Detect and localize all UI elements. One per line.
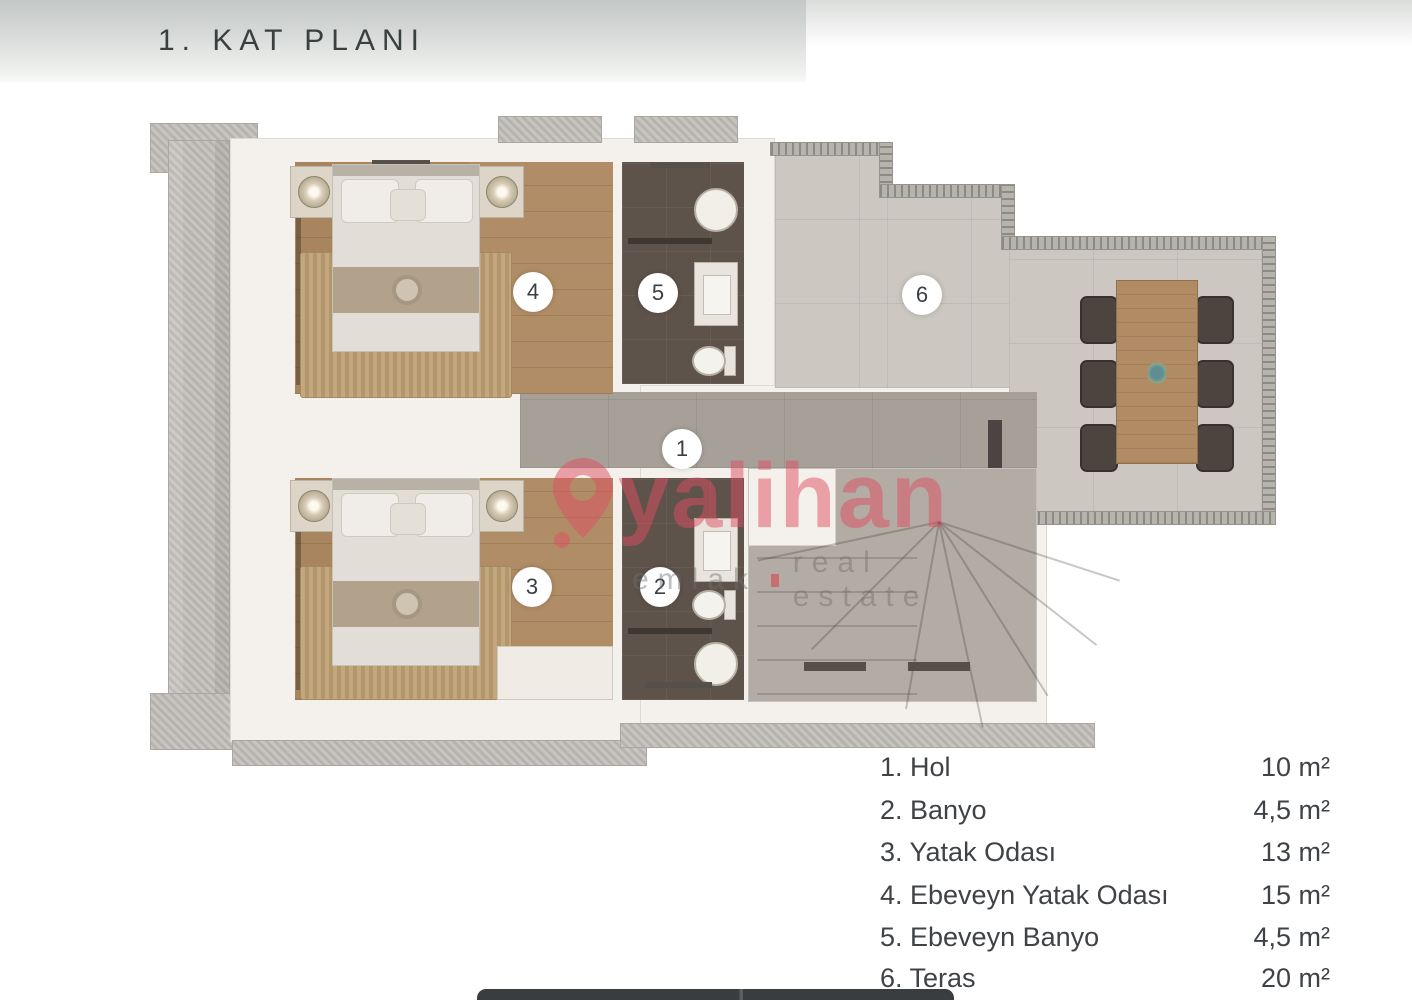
bath-window-slit bbox=[650, 163, 710, 168]
terrace-railing bbox=[879, 184, 1015, 198]
legend-row: 1. Hol 10 m² bbox=[880, 752, 1330, 783]
room-marker-6: 6 bbox=[902, 275, 942, 315]
terrace-railing bbox=[1262, 236, 1276, 525]
room-marker-3: 3 bbox=[512, 567, 552, 607]
dining-chair bbox=[1196, 360, 1234, 408]
stair-window-slit bbox=[804, 662, 866, 671]
vanity-basin bbox=[703, 275, 731, 315]
terrace-railing bbox=[770, 142, 893, 156]
pillow bbox=[390, 503, 426, 535]
nightstand bbox=[478, 166, 524, 218]
dining-chair bbox=[1080, 424, 1118, 472]
headboard bbox=[333, 479, 479, 490]
balcony-rail-left bbox=[168, 140, 230, 736]
room-marker-5-num: 5 bbox=[652, 280, 664, 306]
round-sink bbox=[694, 188, 738, 232]
legend-row: 2. Banyo 4,5 m² bbox=[880, 795, 1330, 826]
room-marker-4-num: 4 bbox=[527, 279, 539, 305]
bed-medallion bbox=[392, 275, 422, 305]
room-marker-5: 5 bbox=[638, 273, 678, 313]
vanity bbox=[694, 262, 738, 326]
roof-block-right bbox=[634, 116, 738, 143]
legend-row: 5. Ebeveyn Banyo 4,5 m² bbox=[880, 922, 1330, 953]
location-pin-icon bbox=[552, 458, 614, 550]
dining-chair bbox=[1080, 296, 1118, 344]
header-gradient bbox=[806, 0, 1412, 52]
terrace-railing bbox=[1030, 511, 1276, 525]
watermark-brand: yalihan bbox=[618, 450, 949, 542]
terrace-floor bbox=[775, 156, 887, 388]
lamp-icon bbox=[298, 176, 330, 208]
nightstand bbox=[290, 480, 336, 532]
legend-label: 1. Hol bbox=[880, 752, 951, 783]
nightstand bbox=[290, 166, 336, 218]
legend-label: 4. Ebeveyn Yatak Odası bbox=[880, 880, 1169, 911]
legend-row: 4. Ebeveyn Yatak Odası 15 m² bbox=[880, 880, 1330, 911]
room-marker-4: 4 bbox=[513, 272, 553, 312]
pillow bbox=[390, 189, 426, 221]
room-marker-3-num: 3 bbox=[526, 574, 538, 600]
table-centerpiece bbox=[1148, 362, 1166, 384]
page-title: 1. KAT PLANI bbox=[158, 20, 426, 62]
watermark-tagline: emlak real estate bbox=[632, 546, 934, 614]
legend-area: 4,5 m² bbox=[1253, 795, 1330, 826]
room-marker-6-num: 6 bbox=[916, 282, 928, 308]
bottom-bar bbox=[477, 989, 954, 1000]
toilet bbox=[692, 346, 726, 376]
lamp-icon bbox=[486, 490, 518, 522]
closet bbox=[497, 646, 613, 700]
bottom-ledge-left bbox=[232, 740, 647, 766]
legend-label: 5. Ebeveyn Banyo bbox=[880, 922, 1099, 953]
dining-chair bbox=[1196, 424, 1234, 472]
round-sink bbox=[694, 642, 738, 686]
roof-block-left bbox=[498, 116, 602, 143]
legend-area: 15 m² bbox=[1261, 880, 1330, 911]
master-bath-floor bbox=[622, 162, 744, 384]
lamp-icon bbox=[486, 176, 518, 208]
terrace-railing bbox=[1001, 236, 1276, 250]
stair-window-slit bbox=[908, 662, 970, 671]
legend-area: 4,5 m² bbox=[1253, 922, 1330, 953]
red-square-icon bbox=[771, 574, 779, 587]
bed-medallion bbox=[392, 589, 422, 619]
bed bbox=[332, 164, 480, 352]
legend-area: 20 m² bbox=[1261, 963, 1330, 994]
watermark-tagline-left: emlak bbox=[632, 563, 757, 597]
bottom-ledge-right bbox=[620, 723, 1095, 748]
legend-area: 10 m² bbox=[1261, 752, 1330, 783]
nightstand bbox=[478, 480, 524, 532]
bath-shelf bbox=[628, 628, 712, 634]
doormat-slit bbox=[646, 682, 712, 688]
stair-tread bbox=[939, 521, 1120, 582]
lamp-icon bbox=[298, 490, 330, 522]
headboard bbox=[333, 165, 479, 176]
floor-plan-page: 1. KAT PLANI bbox=[0, 0, 1412, 1000]
legend-area: 13 m² bbox=[1261, 837, 1330, 868]
legend-label: 3. Yatak Odası bbox=[880, 837, 1056, 868]
legend-label: 2. Banyo bbox=[880, 795, 987, 826]
dining-chair bbox=[1196, 296, 1234, 344]
bath-shelf bbox=[628, 238, 712, 244]
bed bbox=[332, 478, 480, 666]
watermark-tagline-right: real estate bbox=[793, 546, 934, 614]
legend-row: 3. Yatak Odası 13 m² bbox=[880, 837, 1330, 868]
dining-chair bbox=[1080, 360, 1118, 408]
